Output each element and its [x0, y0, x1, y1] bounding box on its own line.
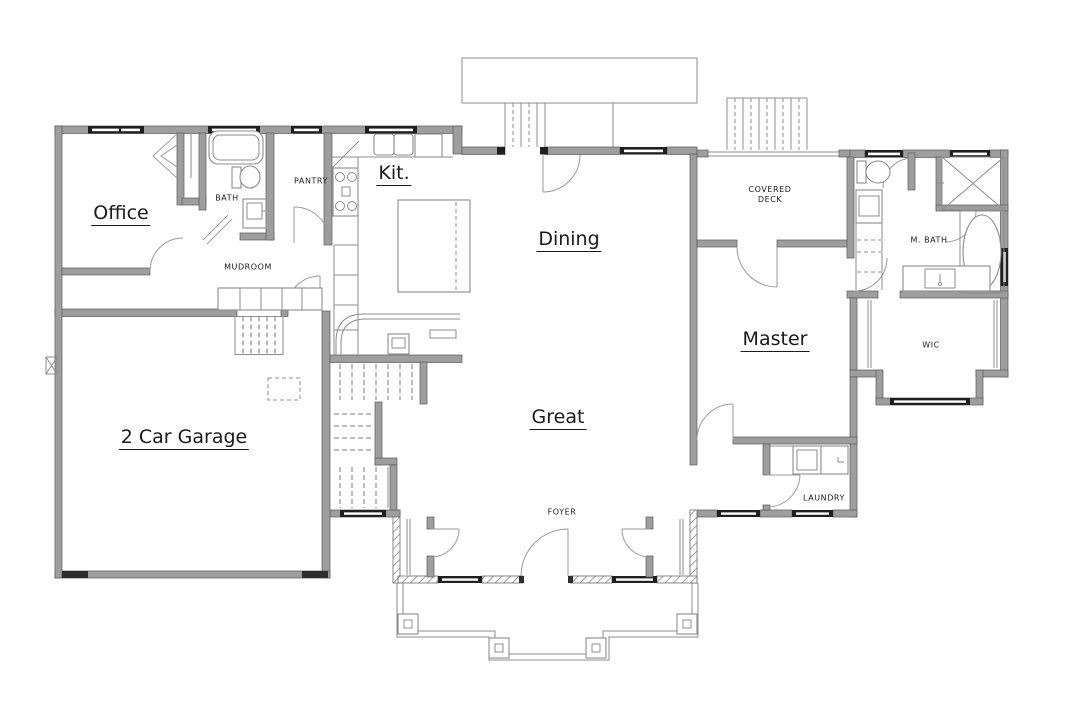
room-label-foyer: FOYER	[548, 508, 577, 517]
room-label-master: Master	[741, 328, 810, 350]
attic-access	[268, 378, 300, 400]
main-stairs	[334, 364, 412, 508]
wic-shelves	[868, 300, 997, 368]
kitchen-island	[398, 200, 470, 292]
room-label-great: Great	[530, 406, 587, 428]
room-label-dining: Dining	[536, 228, 601, 250]
mbath-toilet-bowl	[866, 161, 890, 183]
room-label-pantry: PANTRY	[294, 177, 328, 186]
upper-deck	[462, 58, 697, 147]
porch-post	[677, 614, 697, 634]
room-label-garage: 2 Car Garage	[119, 426, 249, 448]
mbath-toilet-tank	[857, 161, 866, 183]
master-bath-fixtures	[856, 157, 1004, 293]
laundry-appliances	[770, 446, 848, 474]
porch-post	[586, 638, 606, 658]
mbath-vanity	[903, 266, 990, 291]
front-porch	[397, 583, 698, 660]
bath-fixtures	[209, 131, 266, 228]
mudroom-bench	[218, 288, 322, 310]
floor-plan-drawing	[0, 0, 1080, 720]
room-label-covered-deck: COVERED DECK	[749, 185, 792, 205]
room-label-master-bath: M. BATH	[910, 236, 947, 245]
refrigerator	[415, 134, 442, 157]
floor-plan: Office Kit. Dining 2 Car Garage Great Ma…	[0, 0, 1080, 720]
room-label-wic: WIC	[922, 341, 940, 350]
room-label-mudroom: MUDROOM	[224, 263, 272, 272]
porch-post	[489, 638, 509, 658]
room-label-bath: BATH	[215, 194, 238, 203]
room-label-office: Office	[91, 202, 150, 224]
dryer	[821, 446, 848, 474]
room-label-kitchen: Kit.	[376, 162, 411, 184]
garage-details	[46, 357, 300, 400]
office-closet-bifold	[153, 133, 191, 178]
mbath-vanity-left	[856, 190, 882, 223]
kitchen-sink	[374, 134, 394, 155]
foyer-closets	[407, 519, 683, 575]
toilet-bowl	[240, 166, 260, 188]
prep-sink	[388, 334, 409, 354]
basement-stairs	[235, 317, 283, 355]
porch-post	[398, 614, 418, 634]
deck-steps-right	[727, 98, 807, 150]
room-label-laundry: LAUNDRY	[803, 494, 845, 503]
